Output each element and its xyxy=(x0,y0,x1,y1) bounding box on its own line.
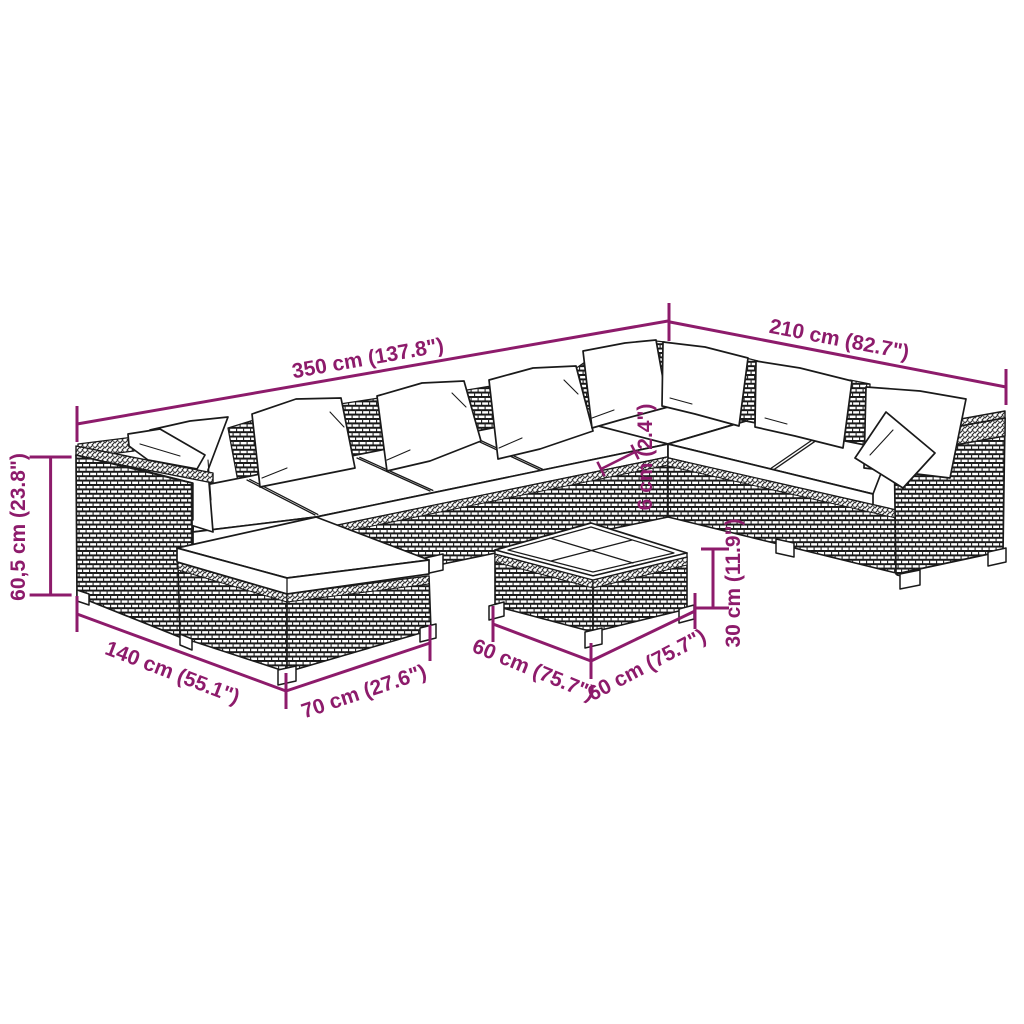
svg-text:30 cm (11.9"): 30 cm (11.9") xyxy=(722,518,745,647)
svg-text:60,5 cm (23.8"): 60,5 cm (23.8") xyxy=(7,453,30,601)
svg-text:6 cm (2.4"): 6 cm (2.4") xyxy=(634,404,657,511)
